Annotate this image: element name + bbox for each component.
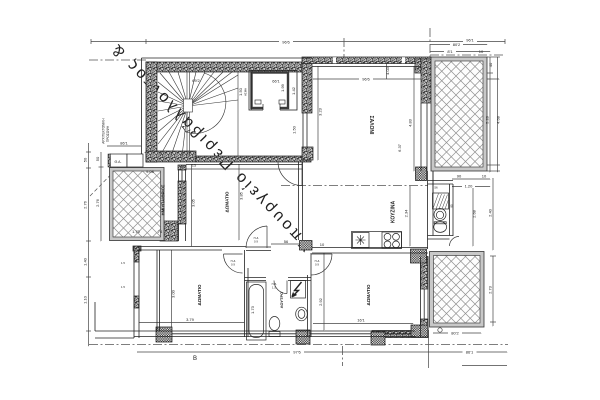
svg-text:96'6: 96'6 <box>282 40 290 45</box>
svg-text:95: 95 <box>450 204 454 208</box>
svg-text:9.08: 9.08 <box>146 169 155 174</box>
svg-text:2.92: 2.92 <box>318 297 323 306</box>
svg-text:97'6: 97'6 <box>293 350 301 355</box>
svg-text:50: 50 <box>95 156 100 161</box>
svg-text:40: 40 <box>488 62 493 67</box>
svg-text:4.83: 4.83 <box>408 118 413 127</box>
svg-text:2.40: 2.40 <box>488 208 493 217</box>
svg-text:10: 10 <box>482 174 487 179</box>
svg-text:B: B <box>193 356 197 362</box>
svg-text:ΔΩΜΑΤΙΟ: ΔΩΜΑΤΙΟ <box>197 284 202 305</box>
svg-text:0.9: 0.9 <box>315 263 319 267</box>
svg-text:1.73: 1.73 <box>250 305 255 314</box>
svg-text:0.9: 0.9 <box>254 240 258 244</box>
svg-text:96'6: 96'6 <box>362 77 370 82</box>
svg-text:6.37: 6.37 <box>397 143 402 152</box>
svg-text:66'1: 66'1 <box>272 79 280 84</box>
svg-text:ΔΩΜΑΤΙΟ: ΔΩΜΑΤΙΟ <box>366 284 371 305</box>
svg-text:4.03: 4.03 <box>385 66 390 75</box>
svg-text:15: 15 <box>192 163 197 168</box>
svg-text:56: 56 <box>284 239 289 244</box>
svg-text:2.73: 2.73 <box>488 285 493 294</box>
svg-text:60: 60 <box>181 164 186 169</box>
svg-text:80'2: 80'2 <box>453 42 461 47</box>
svg-text:Θ.Α.: Θ.Α. <box>114 160 121 164</box>
svg-text:1.20: 1.20 <box>465 184 474 189</box>
svg-text:2.68: 2.68 <box>472 209 477 218</box>
svg-text:1.42: 1.42 <box>291 86 296 95</box>
svg-text:3.23: 3.23 <box>318 107 323 116</box>
svg-text:1.50: 1.50 <box>238 87 243 96</box>
svg-text:1.5: 1.5 <box>121 261 125 265</box>
svg-text:74: 74 <box>158 229 163 234</box>
svg-text:96'1: 96'1 <box>466 38 474 43</box>
svg-text:8'1: 8'1 <box>447 49 453 54</box>
svg-text:80'2: 80'2 <box>451 331 459 336</box>
svg-text:ΚΟΥΖΙΝΑ: ΚΟΥΖΙΝΑ <box>391 201 397 224</box>
svg-text:ΑΡΧΙΤΕΚΤΟΝΙΚΗ: ΑΡΧΙΤΕΚΤΟΝΙΚΗ <box>102 118 106 144</box>
svg-text:69'2: 69'2 <box>192 78 200 83</box>
svg-text:3.79: 3.79 <box>186 317 195 322</box>
svg-text:3.00: 3.00 <box>171 289 176 298</box>
svg-text:ΠΡΟΣΟΨΗ: ΠΡΟΣΟΨΗ <box>106 125 110 142</box>
svg-text:2.76: 2.76 <box>83 200 88 209</box>
svg-text:1.5: 1.5 <box>272 286 276 290</box>
svg-text:1.50: 1.50 <box>292 125 297 134</box>
svg-text:ΑΣΜΑ: ΑΣΜΑ <box>244 88 248 96</box>
svg-text:3.85: 3.85 <box>239 191 244 200</box>
svg-text:ΗΜΙΥΠΑΙΘΡΙΟΣ: ΗΜΙΥΠΑΙΘΡΙΟΣ <box>161 184 166 215</box>
svg-text:4.68: 4.68 <box>496 115 501 124</box>
svg-text:ΔΩΜΑΤΙΟ: ΔΩΜΑΤΙΟ <box>225 191 230 212</box>
svg-text:1.5: 1.5 <box>121 285 125 289</box>
svg-text:10: 10 <box>320 242 325 247</box>
svg-text:56: 56 <box>434 186 438 190</box>
svg-text:2.76: 2.76 <box>95 198 100 207</box>
svg-text:10: 10 <box>479 49 484 54</box>
svg-text:0.9: 0.9 <box>231 263 235 267</box>
svg-text:86'1: 86'1 <box>120 141 128 146</box>
svg-text:ΣΑΛΟΝΙ: ΣΑΛΟΝΙ <box>368 116 374 135</box>
svg-text:ΛΟΥΤΡΟ: ΛΟΥΤΡΟ <box>279 292 284 308</box>
svg-text:2.34: 2.34 <box>404 209 409 218</box>
svg-text:1.70: 1.70 <box>132 229 141 234</box>
svg-text:86'1: 86'1 <box>466 350 474 355</box>
svg-text:5.28: 5.28 <box>485 115 490 124</box>
svg-text:90: 90 <box>457 174 462 179</box>
svg-text:16'1: 16'1 <box>357 318 365 323</box>
svg-text:3.05: 3.05 <box>191 198 196 207</box>
svg-text:1.99: 1.99 <box>280 83 285 92</box>
svg-text:1.10: 1.10 <box>83 295 88 304</box>
svg-text:50: 50 <box>83 157 88 162</box>
svg-text:1.40: 1.40 <box>83 257 88 266</box>
